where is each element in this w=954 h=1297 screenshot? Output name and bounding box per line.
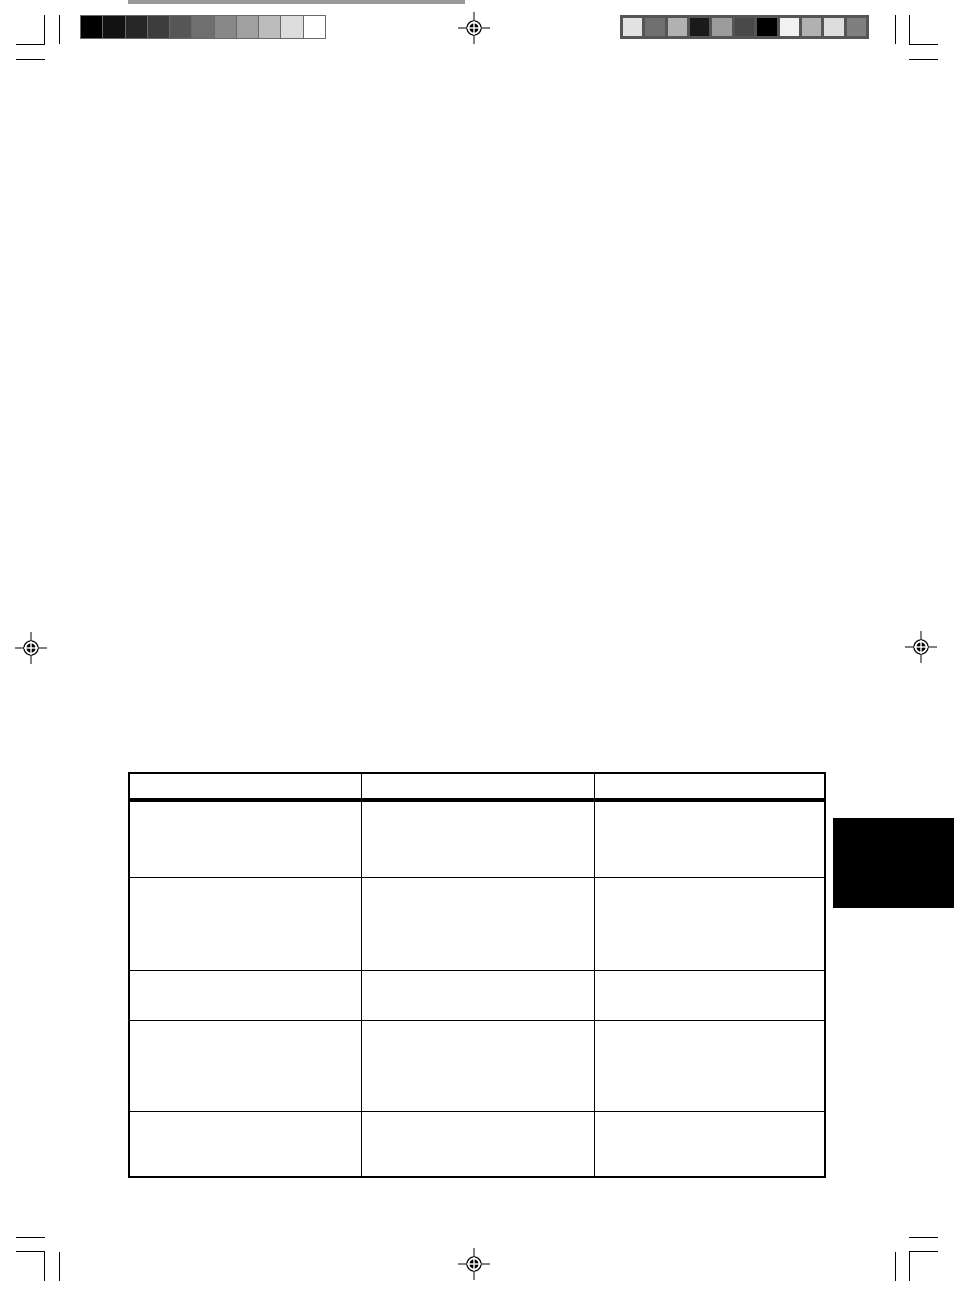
crop-mark [59, 1252, 60, 1281]
table-row [129, 1020, 825, 1111]
calibration-swatch [191, 16, 213, 38]
crop-mark [895, 15, 896, 44]
crop-mark [16, 1251, 45, 1252]
calibration-swatch [690, 18, 709, 36]
table-cell [129, 971, 361, 1020]
table-cell [129, 1112, 361, 1177]
crop-mark [909, 1252, 910, 1281]
crop-mark [909, 1251, 938, 1252]
calibration-swatch [147, 16, 169, 38]
table-header-row [129, 773, 825, 800]
registration-mark-icon [15, 632, 47, 664]
table-cell [594, 877, 825, 970]
calibration-swatch [668, 18, 687, 36]
crop-mark [16, 1237, 45, 1238]
table-row [129, 971, 825, 1020]
table-header-cell [129, 773, 361, 800]
section-tab [833, 818, 954, 908]
section-rule [128, 0, 465, 4]
table-cell [361, 877, 594, 970]
page [0, 0, 954, 1297]
calibration-swatch [802, 18, 821, 36]
calibration-swatch [780, 18, 799, 36]
calibration-swatch [214, 16, 236, 38]
crop-mark [909, 1237, 938, 1238]
calibration-swatch [623, 18, 642, 36]
crop-mark [44, 15, 45, 44]
calibration-swatch [824, 18, 843, 36]
table-cell [594, 1020, 825, 1111]
table-header-cell [594, 773, 825, 800]
calibration-swatch [303, 16, 325, 38]
table-cell [129, 1020, 361, 1111]
table-cell [594, 1112, 825, 1177]
table-cell [129, 800, 361, 877]
crop-mark [895, 1252, 896, 1281]
crop-mark [44, 1252, 45, 1281]
registration-mark-icon [458, 1248, 490, 1280]
calibration-swatch [280, 16, 302, 38]
crop-mark [16, 59, 45, 60]
calibration-swatch [645, 18, 664, 36]
table-cell [361, 800, 594, 877]
table-body [129, 800, 825, 1177]
crop-mark [909, 59, 938, 60]
table-cell [129, 877, 361, 970]
crop-mark [909, 15, 910, 44]
table-row [129, 800, 825, 877]
table-cell [594, 971, 825, 1020]
table-row [129, 1112, 825, 1177]
table-row [129, 877, 825, 970]
color-calibration-bar [620, 15, 869, 39]
calibration-swatch [757, 18, 776, 36]
calibration-swatch [236, 16, 258, 38]
data-table [128, 772, 826, 1178]
crop-mark [59, 15, 60, 44]
calibration-swatch [102, 16, 124, 38]
table-header-cell [361, 773, 594, 800]
calibration-swatch [125, 16, 147, 38]
calibration-swatch [712, 18, 731, 36]
registration-mark-icon [458, 12, 490, 44]
calibration-swatch [81, 16, 102, 38]
table-cell [361, 971, 594, 1020]
calibration-swatch [735, 18, 754, 36]
crop-mark [16, 44, 45, 45]
crop-mark [909, 44, 938, 45]
calibration-swatch [258, 16, 280, 38]
registration-mark-icon [905, 631, 937, 663]
table-cell [594, 800, 825, 877]
calibration-swatch [169, 16, 191, 38]
table-cell [361, 1112, 594, 1177]
grayscale-calibration-bar [80, 15, 326, 39]
calibration-swatch [847, 18, 866, 36]
table-cell [361, 1020, 594, 1111]
